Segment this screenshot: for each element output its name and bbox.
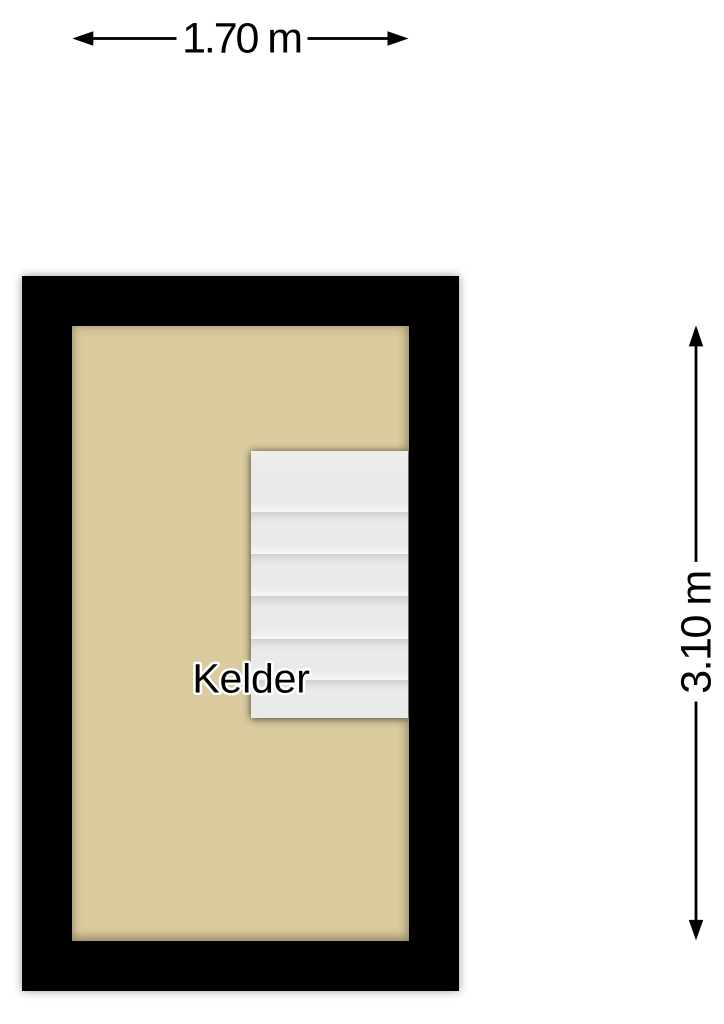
svg-text:Kelder: Kelder xyxy=(192,656,309,702)
svg-text:1.70 m: 1.70 m xyxy=(182,15,301,63)
svg-text:3.10 m: 3.10 m xyxy=(673,571,721,693)
